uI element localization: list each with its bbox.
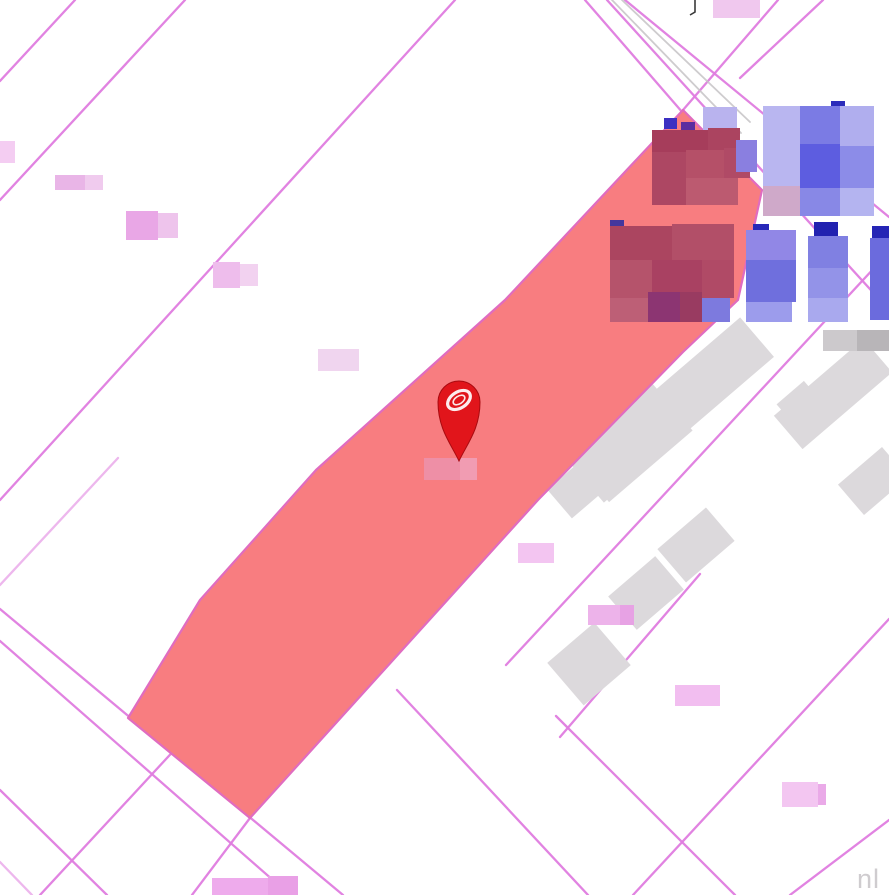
blurred-label xyxy=(212,878,268,895)
building-pixel xyxy=(664,118,677,129)
blurred-label xyxy=(424,458,460,480)
blurred-label xyxy=(818,784,826,805)
building-pixel xyxy=(800,144,840,188)
blurred-label xyxy=(318,349,359,371)
blurred-label xyxy=(782,782,818,807)
blurred-label xyxy=(460,458,477,480)
building-pixel xyxy=(840,188,874,216)
blurred-building-blue-large xyxy=(763,101,874,216)
building-pixel xyxy=(808,268,848,298)
building-pixel xyxy=(746,230,796,260)
map-viewport[interactable]: nl xyxy=(0,0,889,895)
map-canvas: nl xyxy=(0,0,889,895)
building-pixel xyxy=(840,106,874,146)
building-pixel xyxy=(610,260,652,298)
building-pixel xyxy=(648,292,680,322)
blurred-label xyxy=(268,876,298,895)
watermark-text: nl xyxy=(857,864,880,894)
blurred-label xyxy=(240,264,258,286)
blurred-label xyxy=(55,175,85,190)
blurred-label xyxy=(158,213,178,238)
building-pixel xyxy=(814,222,838,236)
building-pixel xyxy=(672,224,734,264)
building-pixel xyxy=(610,226,672,260)
blurred-label xyxy=(620,605,634,625)
blurred-label xyxy=(85,175,103,190)
building-pixel xyxy=(680,292,702,322)
blurred-label xyxy=(518,543,554,563)
building-pixel xyxy=(800,188,840,216)
building-pixel xyxy=(686,178,738,205)
building-pixel xyxy=(808,298,848,322)
building-pixel xyxy=(870,238,889,320)
blurred-label xyxy=(0,141,15,163)
building-pixel xyxy=(763,186,800,216)
building-pixel xyxy=(686,150,724,180)
building-pixel xyxy=(800,106,840,144)
building-pixel xyxy=(610,298,648,322)
blurred-label xyxy=(713,0,760,18)
building-pixel xyxy=(763,106,800,186)
blurred-label xyxy=(126,211,158,240)
pin-label-blurred xyxy=(424,458,477,480)
building-pixel xyxy=(702,298,730,322)
blurred-label xyxy=(588,605,620,625)
building-pixel xyxy=(857,330,889,351)
building-pixel xyxy=(746,302,792,322)
building-pixel xyxy=(746,260,796,302)
building-pixel xyxy=(808,236,848,268)
blurred-building-gray xyxy=(823,330,889,351)
building-pixel xyxy=(840,146,874,188)
building-pixel xyxy=(872,226,889,238)
building-pixel xyxy=(823,330,857,351)
blurred-label xyxy=(675,685,720,706)
blurred-label xyxy=(213,262,240,288)
building-pixel xyxy=(736,140,757,172)
building-pixel xyxy=(652,152,686,205)
building-pixel xyxy=(702,260,734,298)
blurred-building-red-lower xyxy=(610,220,734,322)
building-pixel xyxy=(708,128,740,150)
